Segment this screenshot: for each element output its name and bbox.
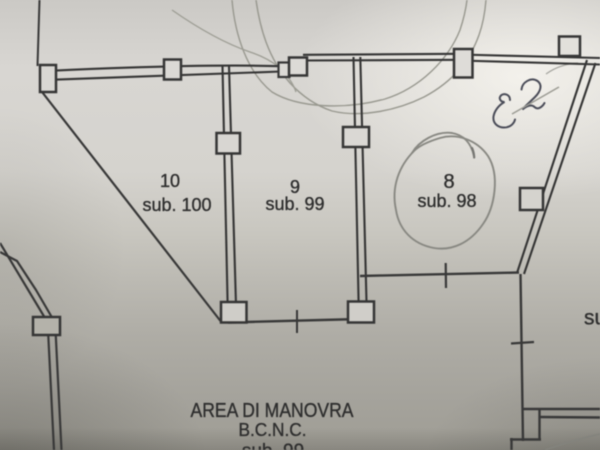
svg-text:sub. 99: sub. 99	[265, 194, 324, 214]
svg-text:10: 10	[160, 171, 180, 191]
svg-text:sub. 100: sub. 100	[142, 195, 211, 215]
svg-text:8: 8	[443, 171, 454, 193]
svg-text:sub. 98: sub. 98	[417, 191, 476, 211]
svg-text:sub. 99: sub. 99	[242, 441, 304, 450]
svg-text:B.C.N.C.: B.C.N.C.	[239, 419, 307, 440]
svg-text:sub.: sub.	[584, 307, 600, 330]
